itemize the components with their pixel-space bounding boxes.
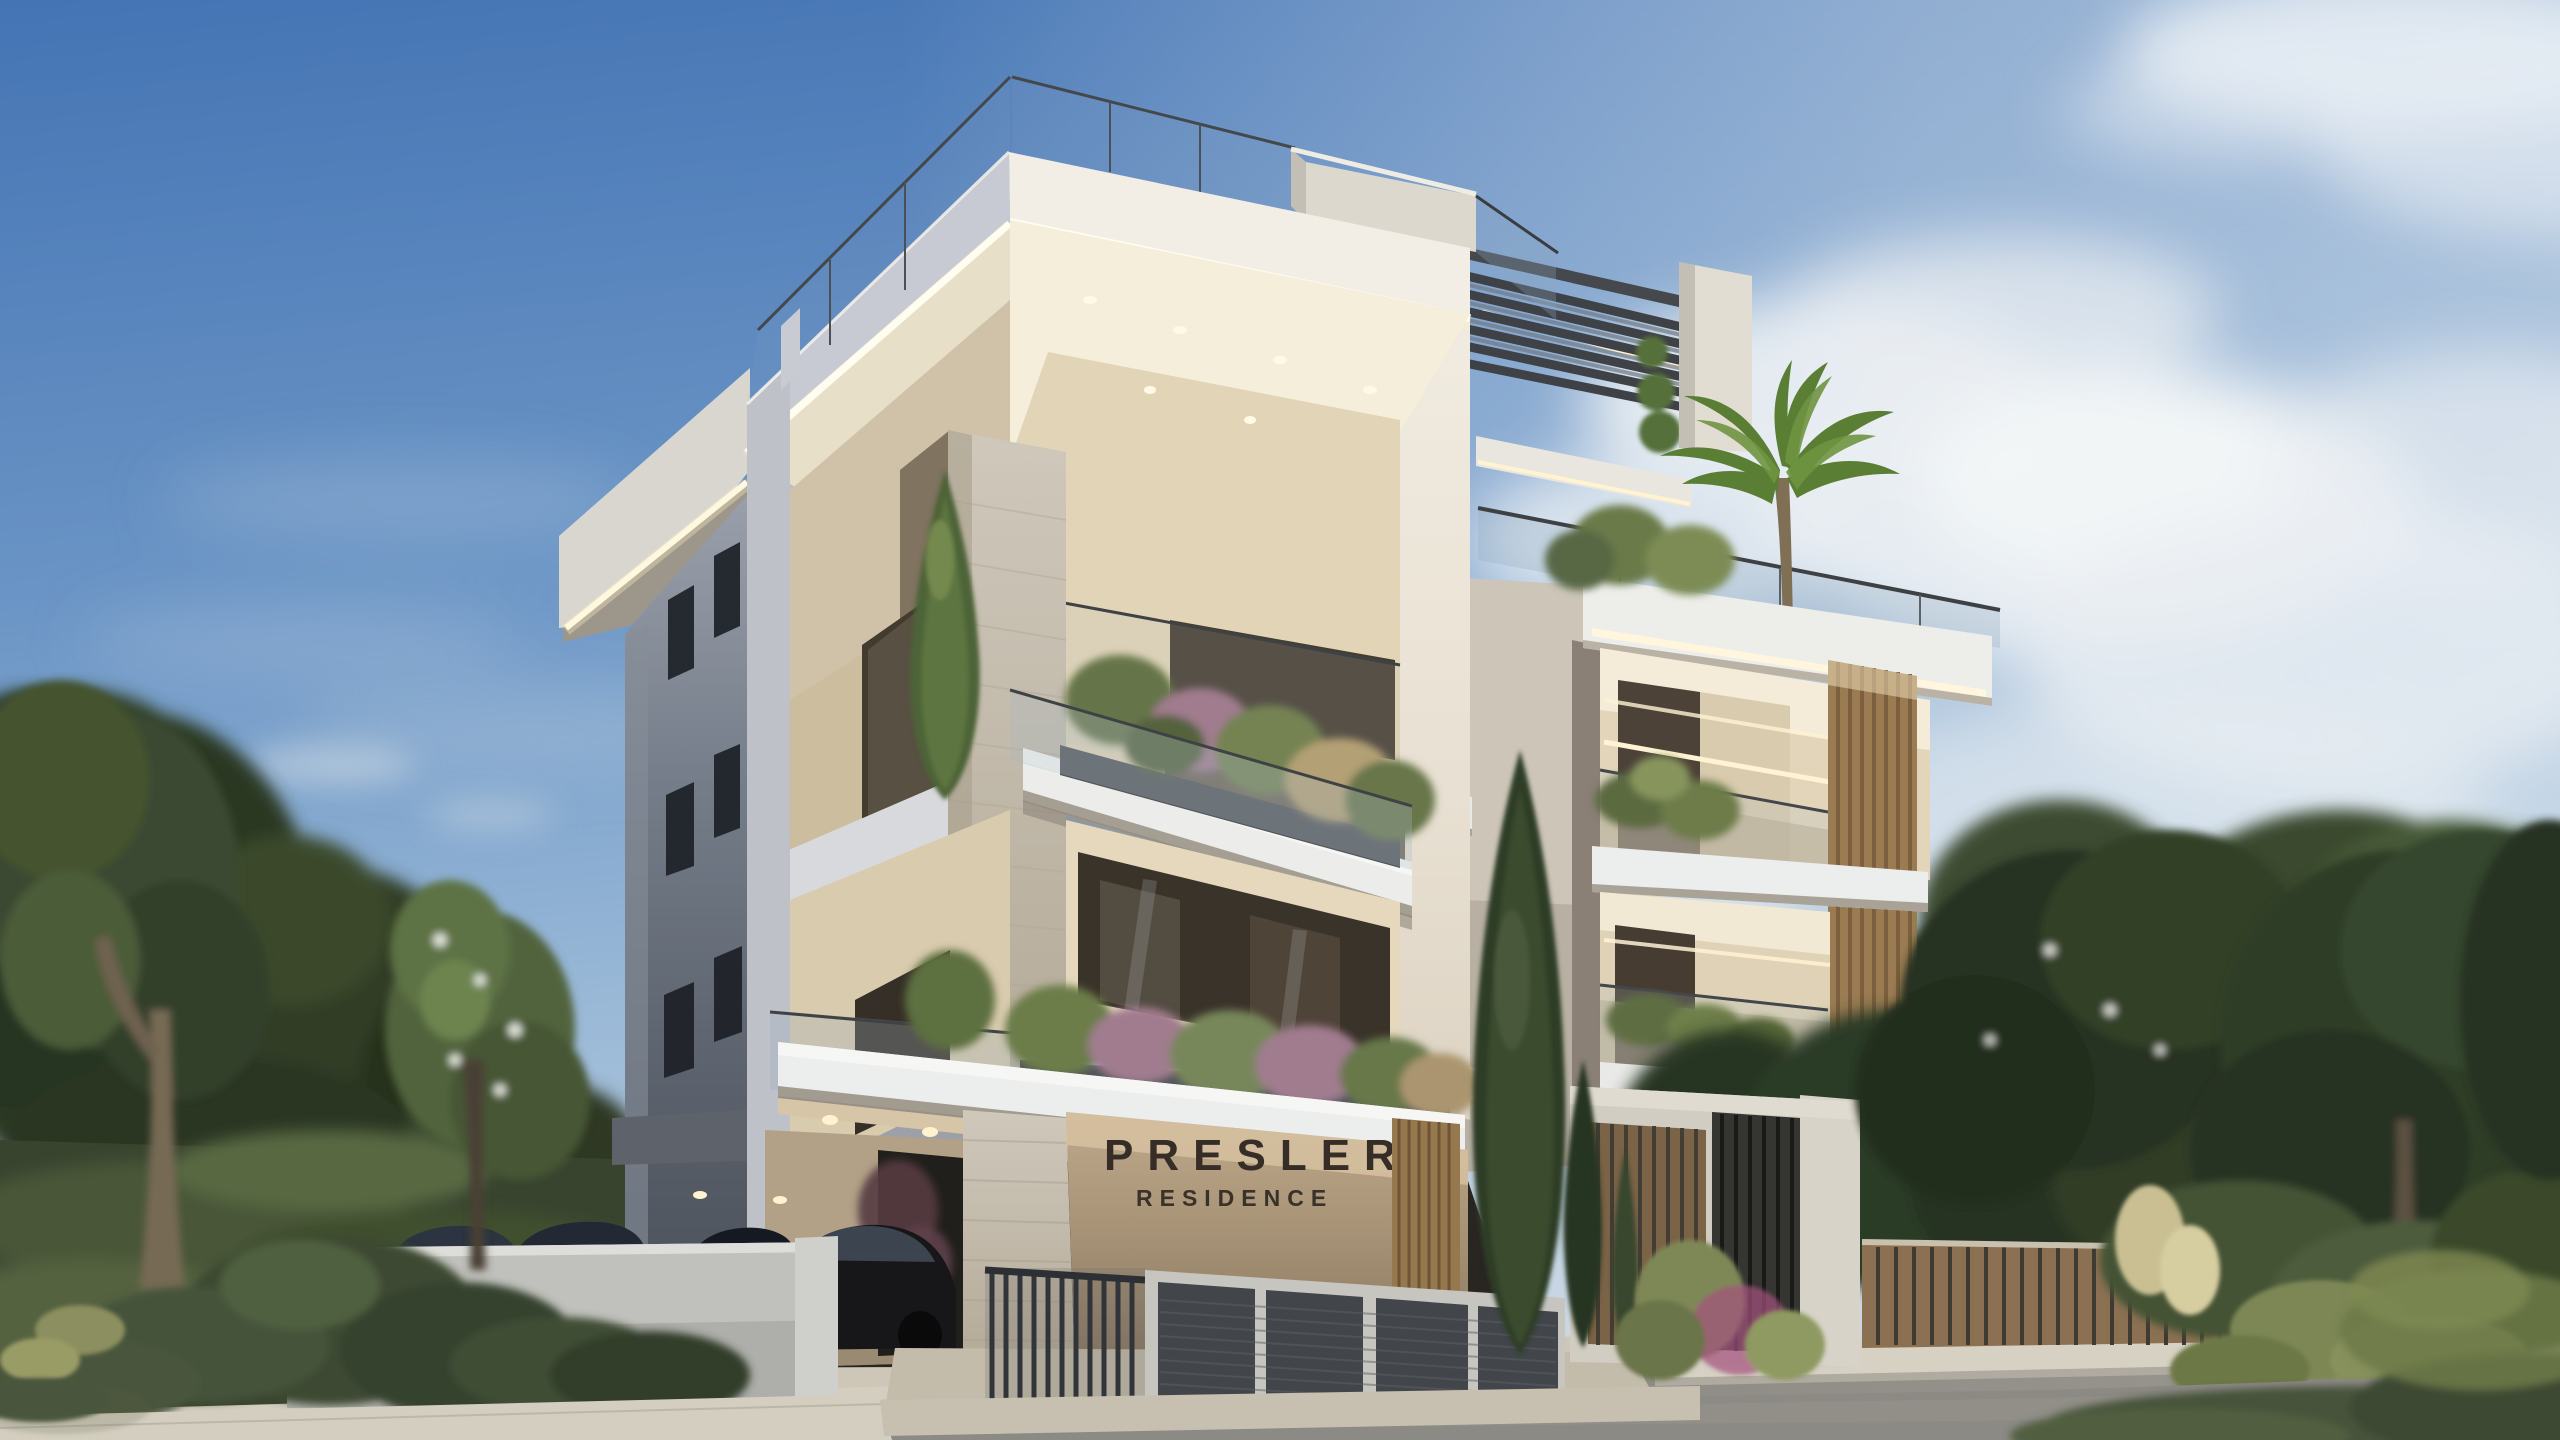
svg-text:PRESLER: PRESLER [1104, 1131, 1410, 1180]
svg-text:RESIDENCE: RESIDENCE [1136, 1185, 1333, 1211]
